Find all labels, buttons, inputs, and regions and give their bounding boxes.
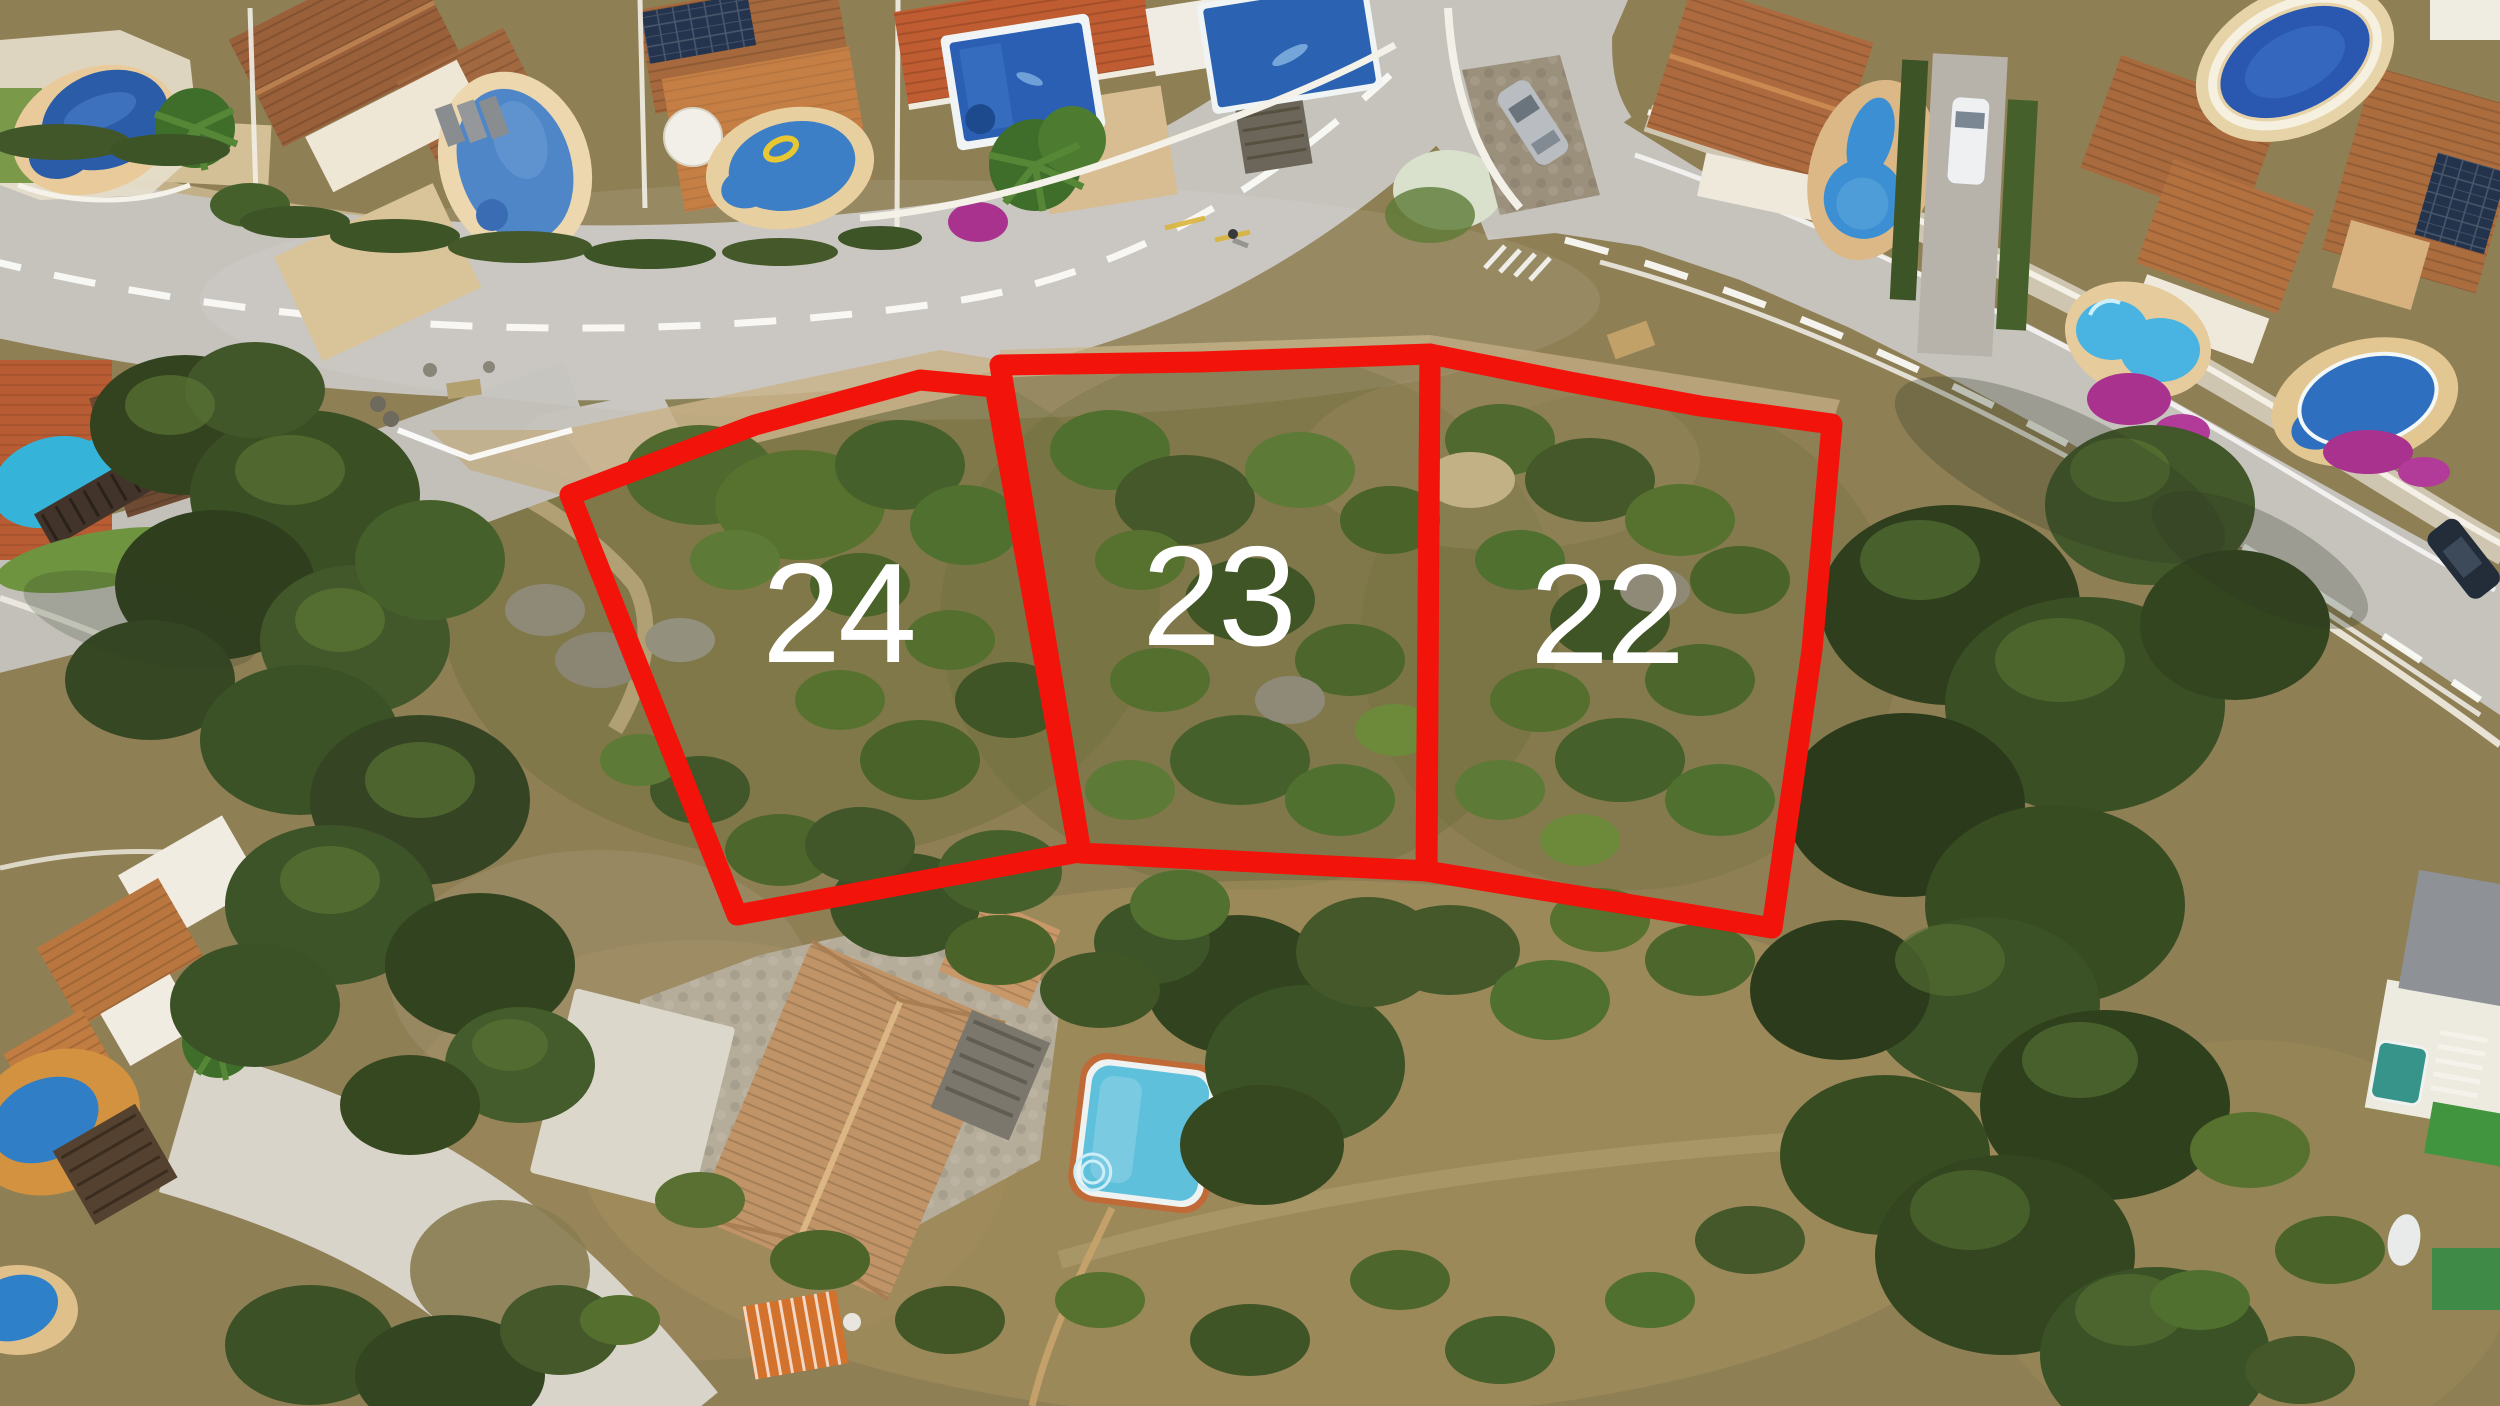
plot-label-22: 22 (1530, 535, 1682, 694)
lawn-patch (2432, 1248, 2500, 1310)
aerial-photo: 24 23 22 (0, 0, 2500, 1406)
van-white (1947, 97, 1990, 185)
teal-pool (2369, 1040, 2428, 1106)
plot-label-24: 24 (762, 534, 914, 693)
bougainvillea (948, 202, 1008, 242)
pedestrian (1228, 229, 1238, 239)
bougainvillea (2087, 373, 2171, 425)
garden-table (843, 1313, 861, 1331)
plot-label-23: 23 (1142, 517, 1294, 676)
